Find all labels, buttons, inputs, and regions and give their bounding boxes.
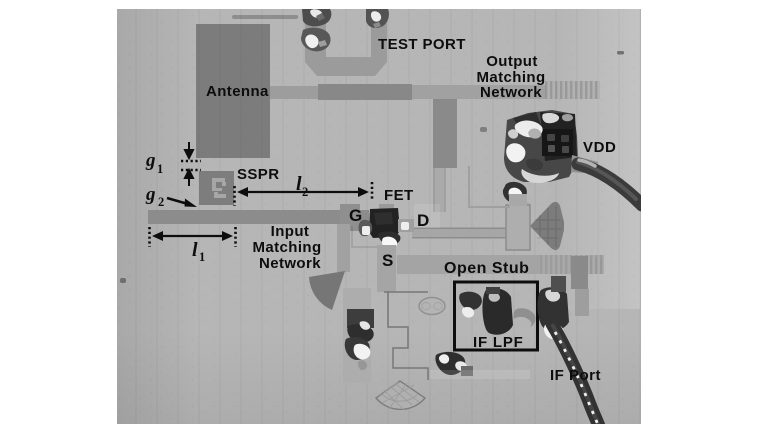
- svg-text:Output: Output: [486, 53, 538, 70]
- svg-text:Matching: Matching: [252, 239, 321, 256]
- svg-text:Network: Network: [259, 255, 321, 272]
- svg-text:TEST PORT: TEST PORT: [378, 36, 466, 53]
- svg-text:Antenna: Antenna: [206, 83, 269, 100]
- svg-text:Network: Network: [480, 84, 542, 101]
- svg-text:IF Port: IF Port: [550, 367, 601, 384]
- svg-text:Open Stub: Open Stub: [444, 260, 529, 277]
- svg-text:IF LPF: IF LPF: [473, 334, 524, 351]
- svg-text:S: S: [382, 251, 393, 270]
- svg-text:SSPR: SSPR: [237, 166, 279, 183]
- svg-text:g: g: [145, 184, 156, 205]
- svg-text:1: 1: [199, 250, 205, 264]
- svg-text:D: D: [417, 211, 429, 230]
- svg-text:VDD: VDD: [583, 139, 616, 156]
- svg-text:2: 2: [158, 195, 164, 209]
- svg-text:FET: FET: [384, 187, 414, 204]
- svg-text:2: 2: [302, 185, 308, 199]
- svg-text:G: G: [349, 206, 362, 225]
- svg-text:Input: Input: [271, 223, 310, 240]
- svg-text:g: g: [145, 150, 156, 171]
- svg-text:l: l: [192, 239, 198, 261]
- svg-text:1: 1: [157, 162, 163, 176]
